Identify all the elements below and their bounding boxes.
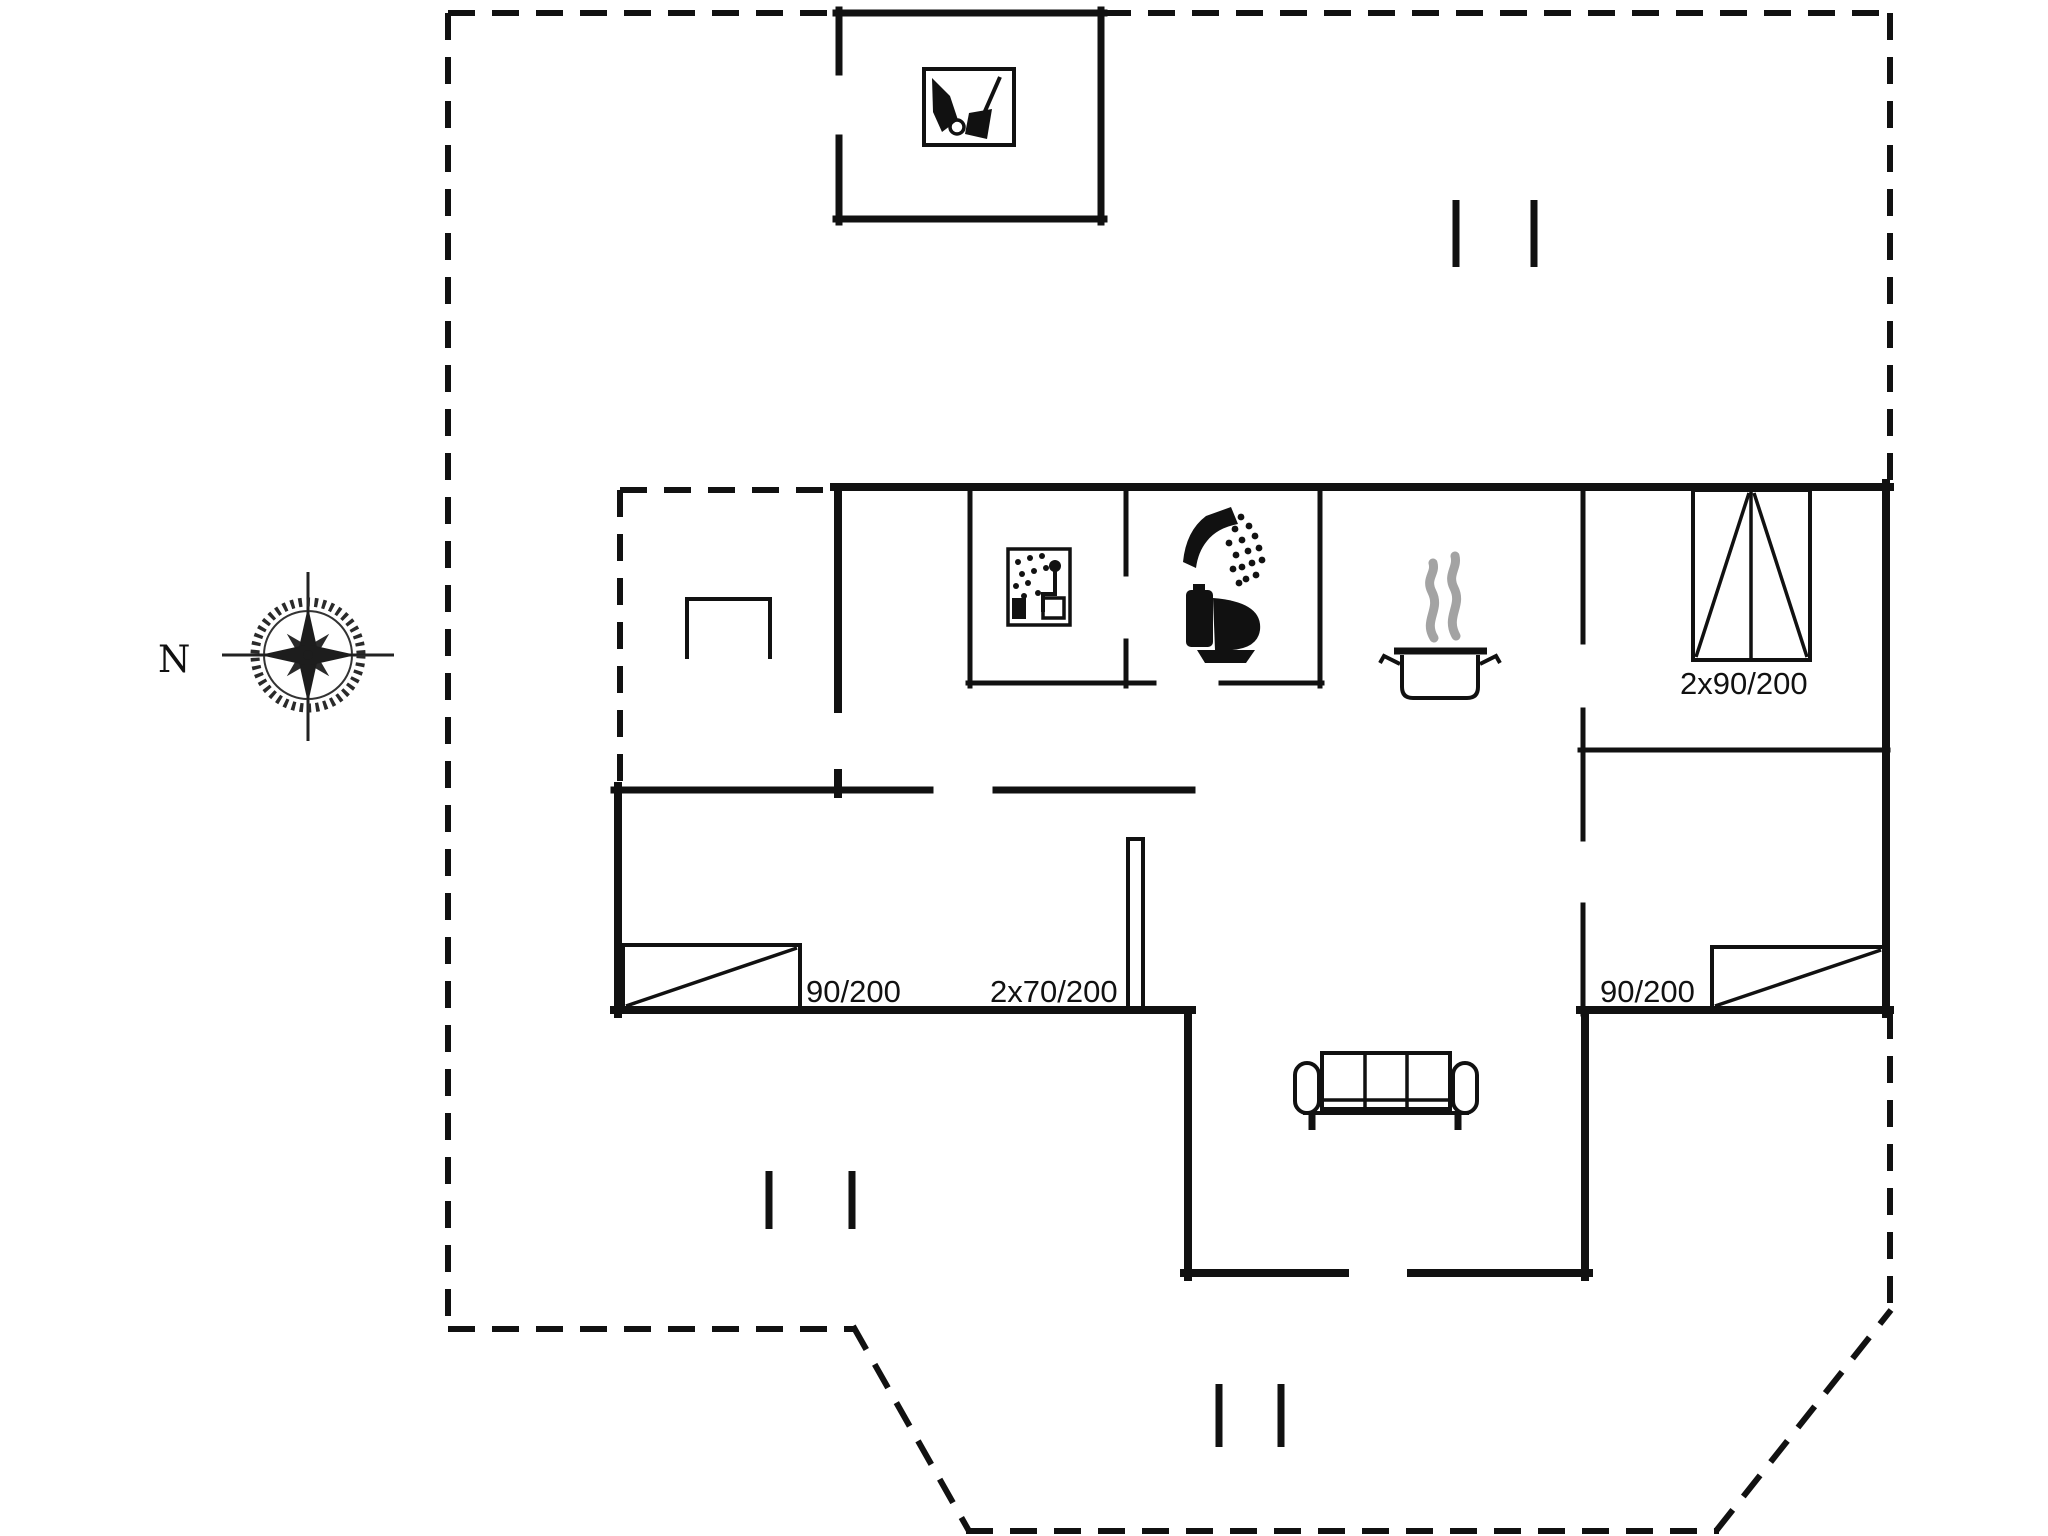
plot-boundary-dashed <box>448 13 1891 1531</box>
toilet-icon <box>1186 584 1260 663</box>
ground-post-marks <box>769 200 1534 1447</box>
left-bed-size-label: 90/200 <box>806 974 901 1009</box>
floor-plan-canvas: N 90/200 2x70/200 90/200 2x90/200 <box>0 0 2048 1536</box>
right-bed-size-label: 90/200 <box>1600 974 1695 1009</box>
cooking-pot-icon <box>1380 556 1500 698</box>
bunk-bed-size-label: 2x70/200 <box>990 974 1118 1009</box>
bed-single-right <box>1712 947 1884 1008</box>
shower-icon <box>1183 507 1265 586</box>
double-bed-size-label: 2x90/200 <box>1680 666 1808 701</box>
bed-single-left <box>623 945 800 1008</box>
compass-rose-icon <box>222 572 394 741</box>
terrace-bench <box>687 599 770 659</box>
garden-tools-icon <box>924 69 1014 145</box>
sofa-icon <box>1295 1053 1477 1130</box>
house-exterior-walls <box>614 483 1890 1277</box>
north-label: N <box>158 638 190 681</box>
bed-double <box>1693 490 1810 660</box>
covered-terrace-boundary <box>620 490 838 788</box>
sauna-icon <box>1008 549 1070 625</box>
bunk-bed <box>1128 839 1143 1011</box>
